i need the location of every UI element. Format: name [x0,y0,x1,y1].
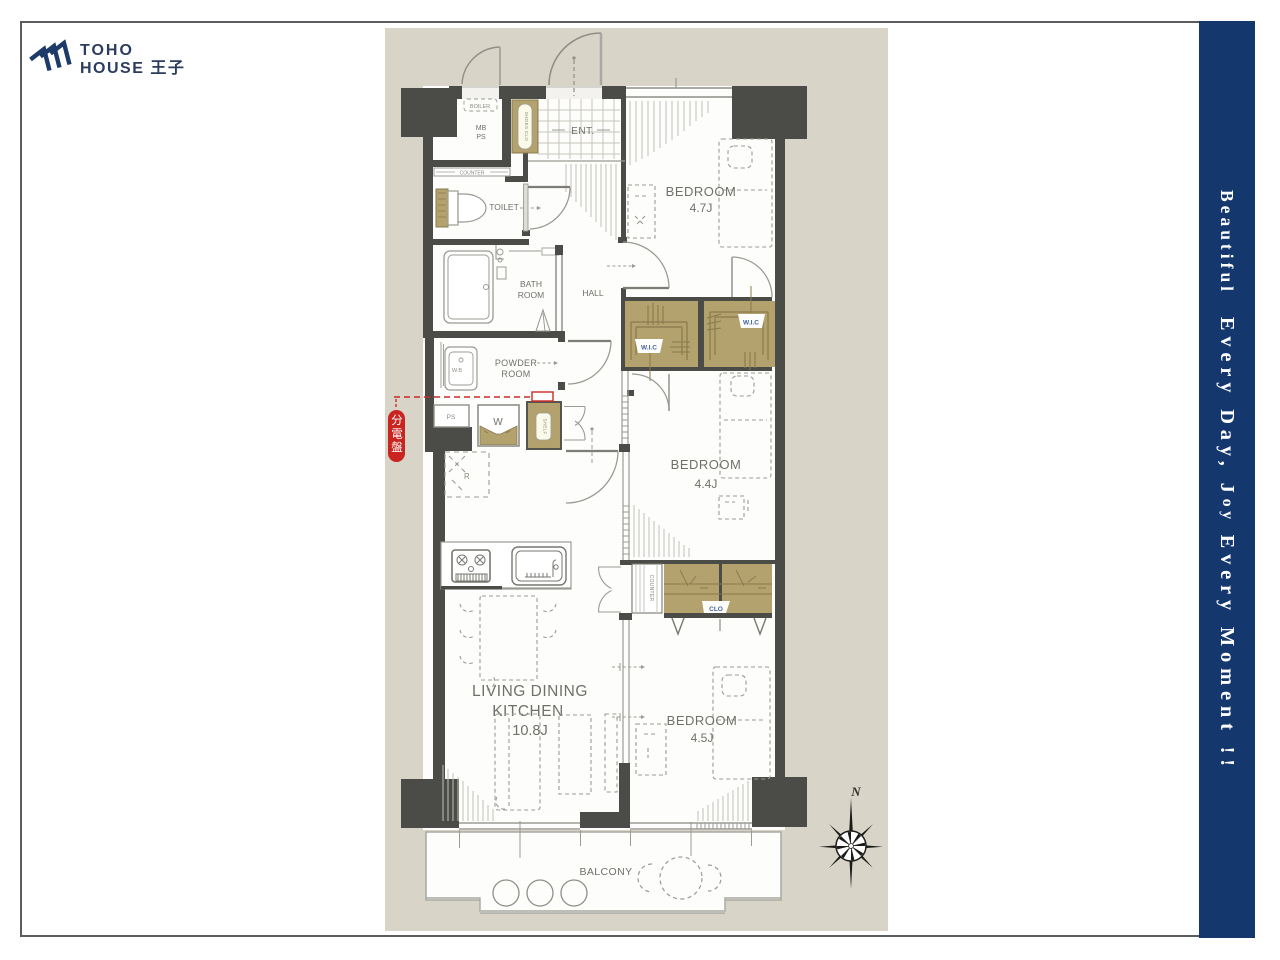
svg-text:BALCONY: BALCONY [580,866,633,878]
svg-text:PS: PS [447,414,456,421]
svg-text:ROOM: ROOM [501,369,530,379]
svg-text:COUNTER: COUNTER [648,575,654,602]
svg-text:ENT.: ENT. [571,126,595,137]
svg-text:HALL: HALL [582,288,604,298]
svg-text:SHELF: SHELF [543,418,548,434]
svg-text:4.7J: 4.7J [690,201,713,215]
svg-text:BEDROOM: BEDROOM [666,184,737,199]
svg-text:CLO: CLO [709,606,723,613]
svg-text:POWDER: POWDER [495,358,538,368]
svg-text:W.I.C: W.I.C [743,320,759,327]
svg-text:4.4J: 4.4J [695,477,718,491]
svg-text:BEDROOM: BEDROOM [671,457,742,472]
svg-text:R: R [464,472,470,481]
svg-text:分電盤: 分電盤 [391,414,403,454]
svg-text:W.I.C: W.I.C [641,345,657,352]
svg-text:BEDROOM: BEDROOM [667,713,738,728]
svg-text:N: N [850,784,861,799]
svg-text:BATH: BATH [520,279,542,289]
svg-text:COUNTER: COUNTER [460,171,485,177]
svg-text:10.8J: 10.8J [512,723,547,739]
svg-text:SHOES CLO: SHOES CLO [524,112,529,142]
svg-text:MB: MB [476,125,487,132]
svg-text:W: W [493,417,503,428]
svg-text:4.5J: 4.5J [691,731,714,745]
svg-text:ROOM: ROOM [518,290,544,300]
svg-text:KITCHEN: KITCHEN [492,703,564,720]
svg-text:PS: PS [476,134,486,141]
svg-text:LIVING DINING: LIVING DINING [472,683,588,700]
svg-text:BOILER: BOILER [470,104,490,110]
svg-text:W.B: W.B [452,368,462,374]
svg-text:TOILET: TOILET [489,202,519,212]
